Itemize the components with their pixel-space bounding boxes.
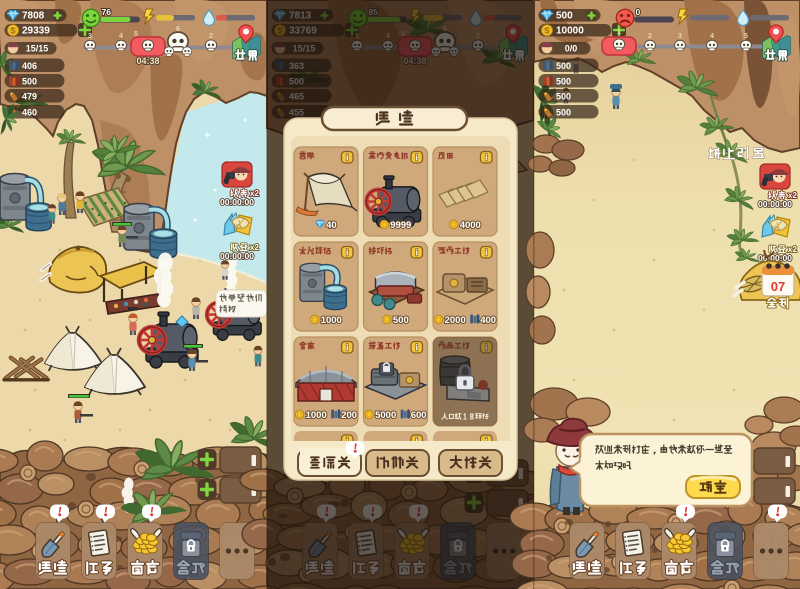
svg-text:5000: 5000: [375, 410, 396, 421]
svg-text:i: i: [346, 248, 349, 258]
svg-text:$: $: [545, 26, 550, 35]
svg-text:00:00:00: 00:00:00: [220, 251, 254, 261]
svg-text:10000: 10000: [556, 26, 584, 37]
svg-text:76: 76: [102, 7, 112, 17]
svg-text:i: i: [416, 248, 419, 258]
svg-text:2: 2: [648, 33, 652, 40]
svg-text:i: i: [416, 343, 419, 353]
svg-text:500: 500: [556, 77, 571, 87]
svg-text:i: i: [346, 153, 349, 163]
svg-text:500: 500: [556, 108, 571, 118]
svg-text:15/15: 15/15: [26, 44, 49, 54]
svg-text:0: 0: [636, 7, 641, 17]
svg-text:$: $: [11, 26, 16, 35]
svg-text:7808: 7808: [22, 11, 45, 22]
svg-text:200: 200: [341, 410, 357, 421]
svg-text:500: 500: [556, 11, 573, 22]
svg-text:1000: 1000: [321, 315, 342, 326]
svg-text:29339: 29339: [22, 26, 50, 37]
svg-text:2000: 2000: [445, 315, 466, 326]
svg-text:i: i: [485, 153, 488, 163]
svg-text:4: 4: [119, 33, 123, 40]
svg-text:479: 479: [22, 92, 37, 102]
svg-text:600: 600: [411, 410, 427, 421]
svg-text:40: 40: [326, 220, 337, 231]
svg-text:406: 406: [22, 61, 37, 71]
svg-text:00:00:00: 00:00:00: [758, 199, 792, 209]
svg-text:4000: 4000: [460, 220, 481, 231]
svg-text:4: 4: [710, 33, 714, 40]
svg-text:i: i: [346, 343, 349, 353]
svg-text:04:38: 04:38: [136, 56, 159, 66]
svg-text:500: 500: [393, 315, 409, 326]
svg-text:460: 460: [22, 108, 37, 118]
svg-text:i: i: [416, 153, 419, 163]
svg-text:5: 5: [134, 31, 138, 38]
svg-text:400: 400: [480, 315, 496, 326]
svg-text:5: 5: [744, 33, 748, 40]
svg-text:i: i: [485, 248, 488, 258]
svg-text:1: 1: [617, 29, 621, 36]
svg-text:0/0: 0/0: [565, 44, 578, 54]
svg-text:00:00:00: 00:00:00: [220, 197, 254, 207]
svg-text:07: 07: [771, 279, 785, 294]
svg-text:3: 3: [88, 33, 92, 40]
svg-text:500: 500: [22, 77, 37, 87]
svg-text:6: 6: [176, 26, 180, 33]
svg-text:500: 500: [556, 61, 571, 71]
svg-text:2: 2: [209, 33, 213, 40]
svg-text:500: 500: [556, 92, 571, 102]
svg-text:1000: 1000: [306, 410, 327, 421]
svg-text:3: 3: [678, 33, 682, 40]
svg-text:9999: 9999: [390, 220, 411, 231]
